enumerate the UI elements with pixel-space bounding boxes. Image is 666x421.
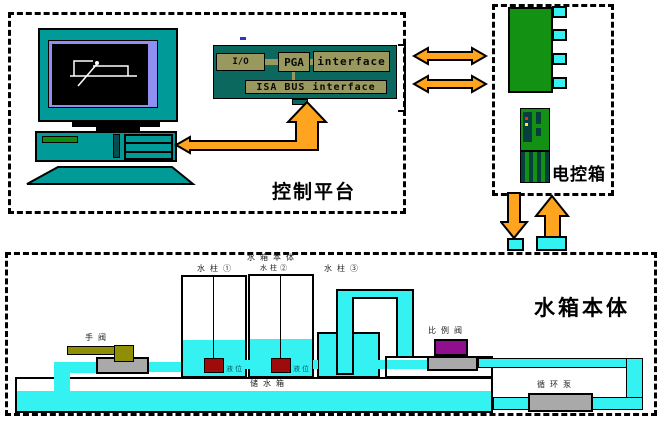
isa-bus-box: ISA BUS interface [245,80,387,94]
tank2-label: 水柱② [260,265,290,272]
water-tank-label: 水箱本体 [534,292,630,322]
card-mark [240,37,246,40]
pipe [54,362,70,391]
power-led [42,136,78,143]
interface-box: interface [313,51,390,72]
pipe [245,360,250,369]
proportional-valve-label: 比例阀 [428,327,467,335]
screen-curve-icon [52,44,148,105]
bus-arrow-icon [410,74,490,94]
case-vent-slot [113,134,120,158]
proportional-valve [434,339,468,356]
card-bracket [398,44,406,112]
io-box: I/O [216,53,265,71]
drive-bay-divider [126,151,171,153]
terminal-block [508,7,553,93]
control-platform-label: 控制平台 [272,177,356,204]
drive-bays [124,134,173,160]
terminal-port [552,6,567,18]
plc-led-red [525,117,528,120]
pump-label: 循环泵 [537,381,576,389]
proportional-valve-body [427,356,478,371]
bus-arrow-icon [410,46,490,66]
plc-slot [536,112,541,124]
tank1-label: 水柱① [197,265,236,273]
pga-box: PGA [278,52,310,72]
tank2-level-label: 液位 [293,366,311,373]
reservoir-water [17,391,491,411]
control-box-label: 电控箱 [552,160,606,185]
hand-valve-head [114,345,134,362]
plc-slot [536,128,541,136]
tank2-level-sensor [271,358,291,373]
hand-valve-label: 手阀 [85,334,111,342]
tank-assembly-label: 水箱本体 [247,254,299,262]
plc-stripes [521,152,549,182]
reservoir-label: 储水箱 [250,380,289,388]
pipe [478,358,643,368]
hand-valve-lever [67,346,118,355]
pipe [387,360,429,369]
drive-bay-divider [126,142,171,144]
tank1-level-sensor [204,358,224,373]
terminal-port [552,53,567,65]
circulation-pump [528,393,593,412]
tank1-probe [213,277,214,358]
card-connector [265,59,278,65]
pipe [70,362,97,373]
terminal-port [552,77,567,89]
terminal-port [552,29,567,41]
tank-signal-port [536,236,567,251]
tank1-level-label: 液位 [226,366,244,373]
signal-up-arrow-icon [534,194,570,242]
tank-signal-port [507,238,524,251]
tank3-label: 水柱③ [324,265,363,273]
plc-led-yellow [525,123,528,126]
tank2-probe [280,276,281,358]
pipe [313,360,318,369]
diagram-stage: I/O PGA interface ISA BUS interface 控制平台… [0,0,666,421]
case-to-card-arrow-icon [170,96,335,158]
pipe [149,362,182,372]
signal-down-arrow-icon [500,192,530,240]
keyboard-icon [24,165,199,186]
